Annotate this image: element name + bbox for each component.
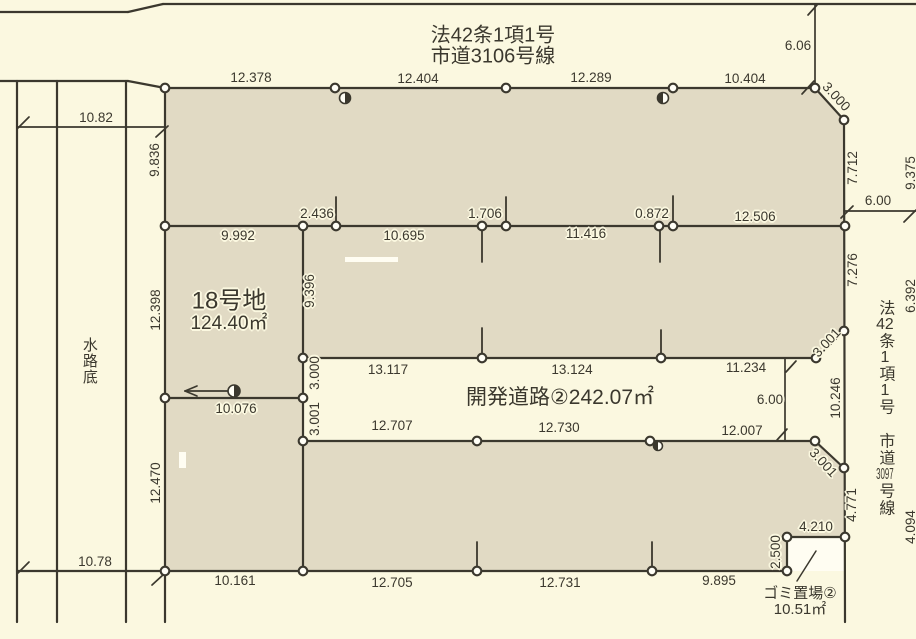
- survey-point: [161, 84, 170, 93]
- survey-point: [299, 394, 308, 403]
- map-geometry: [0, 0, 916, 639]
- survey-point: [478, 222, 487, 231]
- survey-point: [299, 567, 308, 576]
- survey-point: [161, 567, 170, 576]
- parcel-block: [165, 88, 845, 572]
- white-patch-1: [345, 257, 398, 262]
- survey-point: [812, 354, 821, 363]
- survey-point: [669, 222, 678, 231]
- survey-point: [332, 222, 341, 231]
- survey-point: [646, 437, 655, 446]
- survey-point: [657, 354, 666, 363]
- survey-point: [840, 464, 849, 473]
- map-line: [844, 120, 845, 622]
- benchmark-marker: [658, 93, 669, 104]
- survey-point: [502, 84, 511, 93]
- map-line: [128, 81, 165, 88]
- survey-point: [811, 84, 820, 93]
- survey-point: [811, 437, 820, 446]
- white-patch-2: [179, 452, 186, 468]
- survey-point: [841, 222, 850, 231]
- benchmark-marker: [228, 385, 240, 397]
- survey-point: [473, 567, 482, 576]
- dev-road-band: [303, 358, 845, 441]
- survey-point: [783, 533, 792, 542]
- survey-point: [669, 84, 678, 93]
- survey-point: [478, 354, 487, 363]
- survey-point: [655, 222, 664, 231]
- survey-point: [161, 394, 170, 403]
- survey-point: [473, 437, 482, 446]
- survey-point: [648, 567, 657, 576]
- survey-point: [161, 222, 170, 231]
- parcel-fills: [165, 88, 845, 572]
- garbage-area: [787, 537, 845, 571]
- survey-point: [299, 354, 308, 363]
- survey-point: [783, 567, 792, 576]
- land-survey-map: 法42条1項1号市道3106号線12.37812.40412.28910.404…: [0, 0, 916, 639]
- survey-point: [840, 327, 849, 336]
- map-line: [152, 574, 164, 585]
- survey-point: [331, 84, 340, 93]
- survey-point: [841, 533, 850, 542]
- survey-point: [299, 222, 308, 231]
- map-line: [128, 4, 163, 12]
- survey-point: [502, 222, 511, 231]
- survey-point: [299, 437, 308, 446]
- survey-point: [840, 116, 849, 125]
- benchmark-marker: [340, 93, 351, 104]
